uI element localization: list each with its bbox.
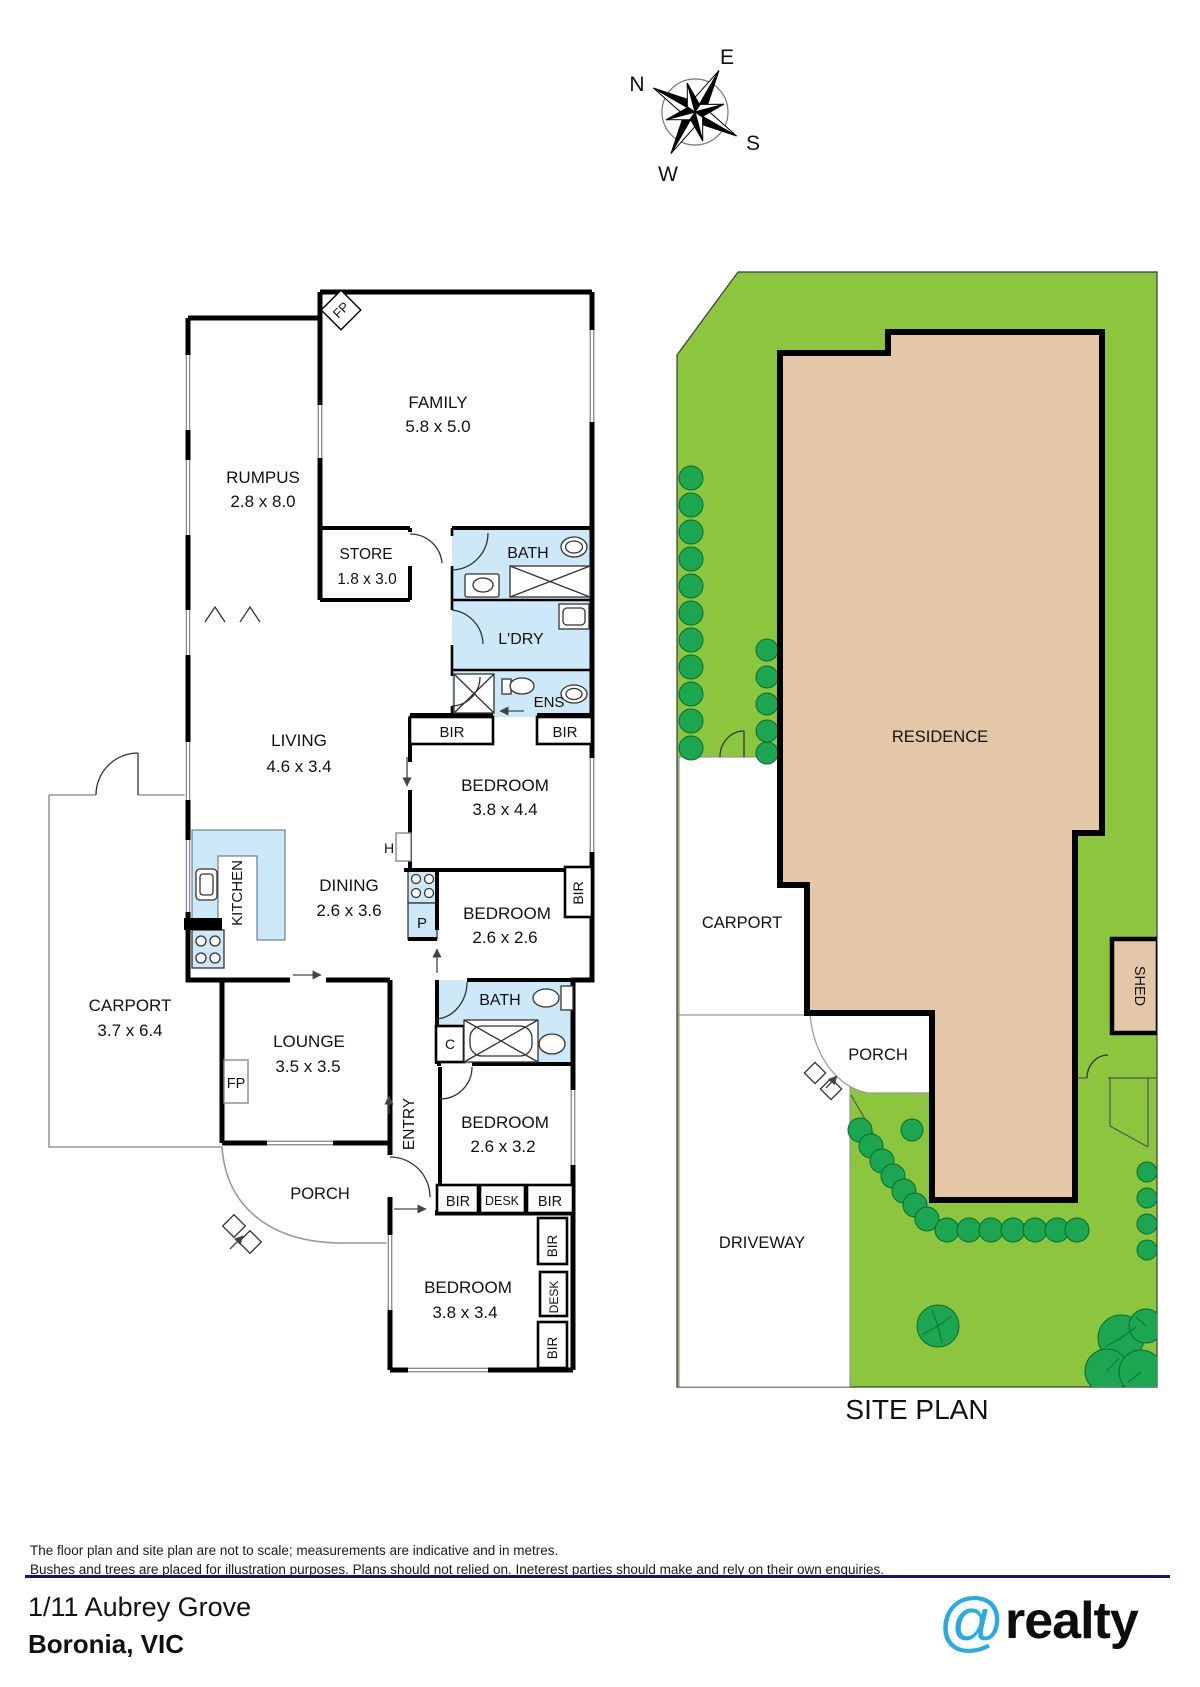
room-label-bedroom2: BEDROOM (463, 904, 551, 923)
bir-label-6: BIR (545, 1235, 560, 1258)
site-label-driveway: DRIVEWAY (719, 1234, 805, 1252)
site-plan: RESIDENCE CARPORT PORCH DRIVEWAY SHED SI… (677, 272, 1163, 1425)
room-label-bedroom3: BEDROOM (461, 1113, 549, 1132)
room-dims-carport: 3.7 x 6.4 (97, 1021, 162, 1040)
room-label-laundry: L'DRY (498, 631, 544, 648)
room-dims-lounge: 3.5 x 3.5 (275, 1057, 340, 1076)
room-label-rumpus: RUMPUS (226, 468, 300, 487)
site-label-carport: CARPORT (702, 914, 782, 932)
room-label-ensuite: ENS (534, 694, 565, 711)
site-label-shed: SHED (1131, 966, 1147, 1006)
room-label-kitchen: KITCHEN (229, 860, 246, 926)
room-dims-store: 1.8 x 3.0 (337, 571, 397, 588)
floorplan-page: N E S W (0, 0, 1200, 1687)
room-label-bedroom1: BEDROOM (461, 776, 549, 795)
desk-label-1: DESK (485, 1194, 520, 1208)
bir-label-7: BIR (545, 1337, 560, 1360)
address-suburb: Boronia, VIC (28, 1629, 251, 1660)
bir-label-4: BIR (446, 1194, 470, 1210)
site-label-porch: PORCH (848, 1046, 908, 1064)
room-dims-bedroom1: 3.8 x 4.4 (472, 800, 537, 819)
bir-label-3: BIR (570, 881, 586, 904)
cupboard-marker: C (445, 1036, 455, 1052)
room-label-family: FAMILY (408, 393, 467, 412)
fireplace-marker-lounge: FP (227, 1076, 246, 1092)
room-dims-living: 4.6 x 3.4 (266, 757, 331, 776)
room-label-bath2: BATH (479, 992, 520, 1009)
disclaimer-line1: The floor plan and site plan are not to … (30, 1541, 884, 1560)
room-dims-bedroom2: 2.6 x 2.6 (472, 928, 537, 947)
plan-canvas: N E S W (0, 0, 1200, 1687)
room-label-lounge: LOUNGE (273, 1032, 345, 1051)
bir-label-2: BIR (552, 724, 577, 741)
room-label-bedroom4: BEDROOM (424, 1278, 512, 1297)
compass-rose: N E S W (629, 46, 760, 186)
room-dims-family: 5.8 x 5.0 (405, 417, 470, 436)
room-dims-dining: 2.6 x 3.6 (316, 901, 381, 920)
floor-plan: FP FAMILY 5.8 x 5.0 RUMPUS 2.8 x 8.0 STO… (49, 290, 595, 1373)
compass-n: N (629, 73, 644, 96)
compass-s: S (746, 132, 760, 155)
logo-name: realty (1005, 1591, 1138, 1651)
site-plan-title: SITE PLAN (845, 1394, 988, 1425)
fireplace-marker-family: FP (321, 290, 361, 330)
room-label-dining: DINING (319, 876, 379, 895)
room-label-porch: PORCH (290, 1185, 350, 1203)
desk-label-2: DESK (547, 1281, 561, 1314)
bir-label-5: BIR (538, 1194, 562, 1210)
bir-label-1: BIR (439, 724, 464, 741)
site-label-residence: RESIDENCE (892, 728, 988, 746)
hot-water-marker: H (384, 840, 394, 856)
property-address: 1/11 Aubrey Grove Boronia, VIC (28, 1592, 251, 1660)
room-label-living: LIVING (271, 731, 327, 750)
room-dims-bedroom4: 3.8 x 3.4 (432, 1303, 497, 1322)
realty-logo: @realty (938, 1588, 1138, 1654)
disclaimer-text: The floor plan and site plan are not to … (30, 1541, 884, 1579)
compass-w: W (658, 163, 678, 186)
divider-rule (25, 1575, 1170, 1578)
compass-e: E (720, 46, 734, 69)
site-driveway-area (679, 1015, 850, 1387)
room-label-entry: ENTRY (401, 1098, 418, 1150)
room-label-store: STORE (339, 546, 392, 563)
room-dims-rumpus: 2.8 x 8.0 (230, 492, 295, 511)
room-dims-bedroom3: 2.6 x 3.2 (470, 1137, 535, 1156)
address-street: 1/11 Aubrey Grove (28, 1592, 251, 1623)
room-label-carport: CARPORT (89, 996, 172, 1015)
room-label-bath1: BATH (507, 545, 548, 562)
logo-at-icon: @ (938, 1588, 1005, 1654)
pantry-marker: P (417, 915, 427, 932)
